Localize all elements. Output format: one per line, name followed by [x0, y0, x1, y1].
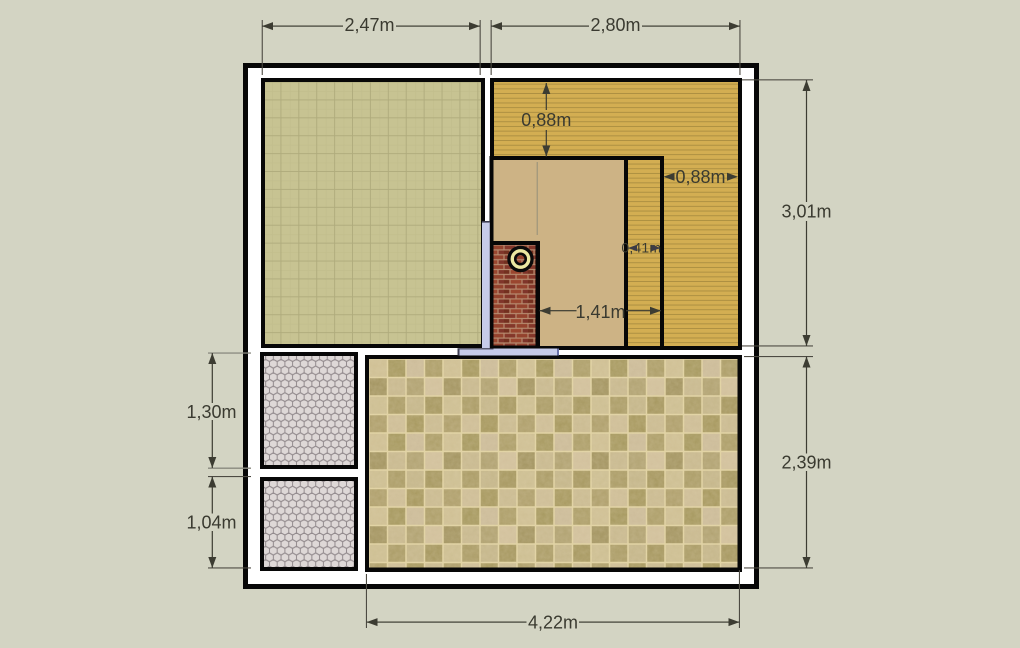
- svg-text:4,22m: 4,22m: [528, 613, 578, 633]
- svg-text:2,47m: 2,47m: [344, 15, 394, 35]
- svg-text:0,88m: 0,88m: [521, 110, 571, 130]
- svg-text:0,88m: 0,88m: [675, 167, 725, 187]
- svg-text:2,39m: 2,39m: [781, 453, 831, 473]
- svg-text:1,30m: 1,30m: [186, 402, 236, 422]
- svg-text:1,41m: 1,41m: [575, 302, 625, 322]
- svg-text:1,04m: 1,04m: [186, 513, 236, 533]
- svg-text:2,80m: 2,80m: [590, 15, 640, 35]
- svg-text:3,01m: 3,01m: [781, 202, 831, 222]
